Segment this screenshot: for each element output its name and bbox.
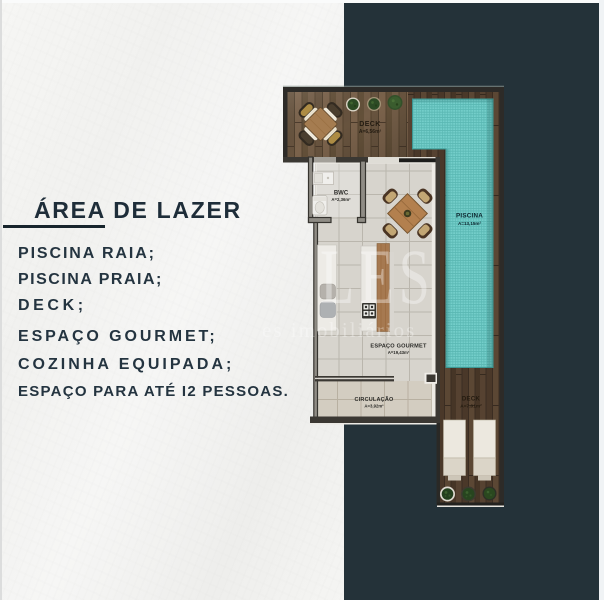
svg-text:BWC: BWC <box>334 191 349 197</box>
svg-text:A=7,01m²: A=7,01m² <box>460 404 482 410</box>
svg-text:ESPAÇO GOURMET: ESPAÇO GOURMET <box>370 344 427 350</box>
svg-text:A=6,56m²: A=6,56m² <box>359 129 382 135</box>
svg-text:A=19,43m²: A=19,43m² <box>388 350 410 355</box>
svg-text:A=3,92m²: A=3,92m² <box>364 404 384 409</box>
svg-text:A=13,15m²: A=13,15m² <box>458 221 482 226</box>
svg-text:A=2,36m²: A=2,36m² <box>331 197 351 202</box>
svg-text:DECK: DECK <box>359 121 380 128</box>
svg-text:DECK: DECK <box>462 397 481 403</box>
svg-text:LES: LES <box>320 233 435 320</box>
svg-text:es imobiliários: es imobiliários <box>262 318 416 342</box>
svg-text:CIRCULAÇÃO: CIRCULAÇÃO <box>355 396 394 403</box>
svg-text:PISCINA: PISCINA <box>456 213 483 220</box>
